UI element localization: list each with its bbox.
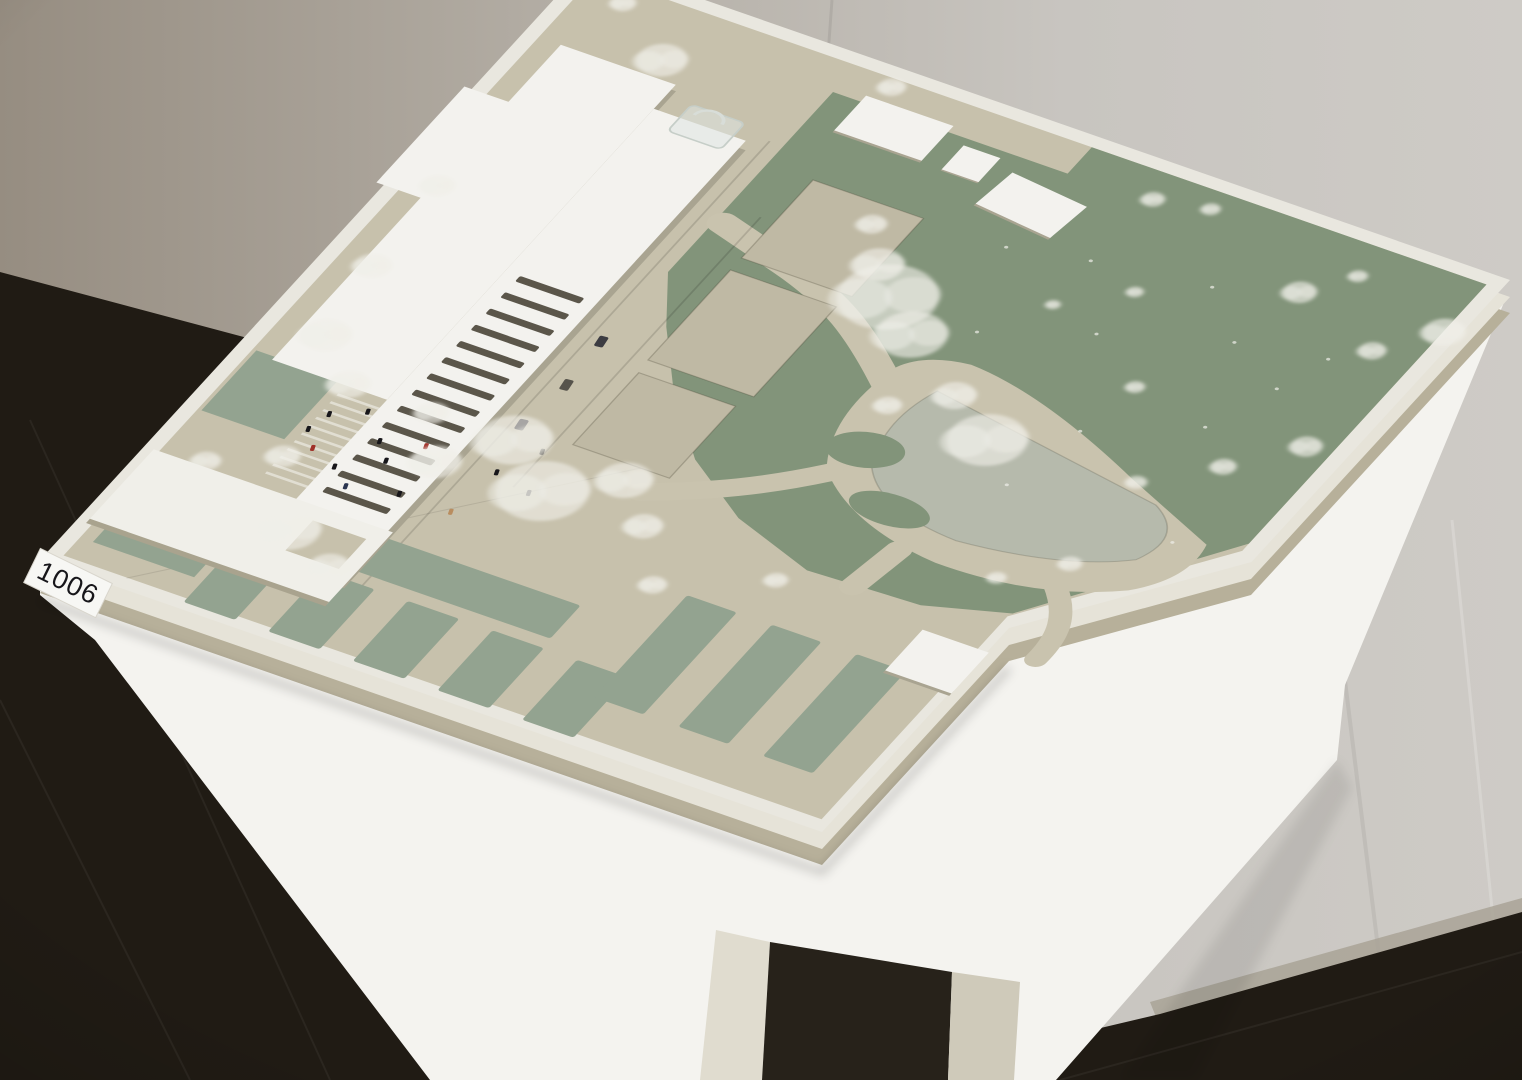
photo-architectural-model: 1006 bbox=[0, 0, 1522, 1080]
photo-vignette bbox=[0, 0, 1522, 1080]
